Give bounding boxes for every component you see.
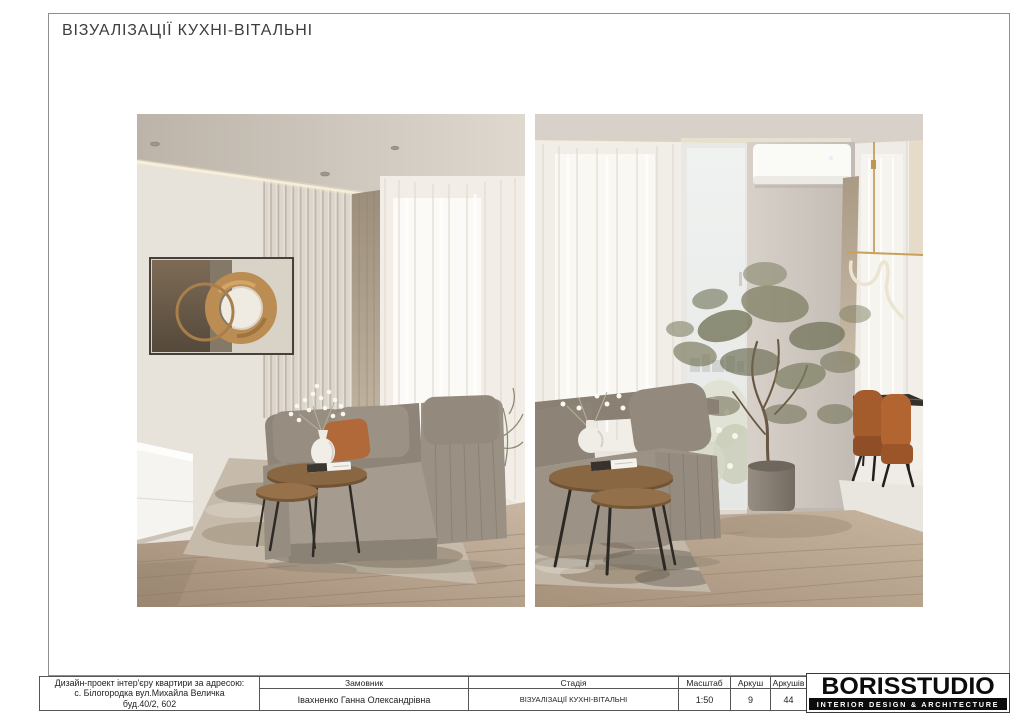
sheet-value: 9 [731,689,770,710]
plant-pot [748,461,795,512]
living-room-render-2 [535,114,923,607]
sheets-total-header: Аркушів [771,677,806,689]
studio-logo-tagline: INTERIOR DESIGN & ARCHITECTURE [809,698,1007,710]
stage-cell: Стадія ВІЗУАЛІЗАЦІЇ КУХНІ-ВІТАЛЬНІ [469,677,679,710]
air-conditioner [753,144,851,188]
scale-header: Масштаб [679,677,730,689]
project-address-cell: Дизайн-проект інтер'єру квартири за адре… [40,677,260,710]
living-room-render-1 [137,114,525,607]
dining-chair [881,394,911,450]
scale-value: 1:50 [679,689,730,710]
design-sheet: { "page": { "title": "ВІЗУАЛІЗАЦІЇ КУХНІ… [0,0,1024,724]
sheets-total-value: 44 [771,689,806,710]
sheet-cell: Аркуш 9 [731,677,771,710]
address-line-2: с. Білогородка вул.Михайла Величка [55,688,245,698]
customer-header: Замовник [260,677,468,689]
stage-header: Стадія [469,677,678,689]
address-line-3: буд.40/2, 602 [55,699,245,709]
mirror-strip [909,134,923,254]
render-view-1 [137,114,525,607]
customer-value: Івахненко Ганна Олександрівна [260,689,468,710]
back-cushion [627,381,714,459]
render-view-2 [535,114,923,607]
customer-cell: Замовник Івахненко Ганна Олександрівна [260,677,469,710]
stage-value: ВІЗУАЛІЗАЦІЇ КУХНІ-ВІТАЛЬНІ [469,689,678,710]
page-title: ВІЗУАЛІЗАЦІЇ КУХНІ-ВІТАЛЬНІ [62,22,313,40]
white-console [137,442,193,545]
sheets-total-cell: Аркушів 44 [771,677,807,710]
address-line-1: Дизайн-проект інтер'єру квартири за адре… [55,678,245,688]
studio-logo-name: BORISSTUDIO [803,673,1013,701]
scale-cell: Масштаб 1:50 [679,677,731,710]
studio-logo: BORISSTUDIO INTERIOR DESIGN & ARCHITECTU… [806,673,1010,713]
wall-art [150,258,293,354]
sheet-header: Аркуш [731,677,770,689]
dining-chair [853,390,883,442]
